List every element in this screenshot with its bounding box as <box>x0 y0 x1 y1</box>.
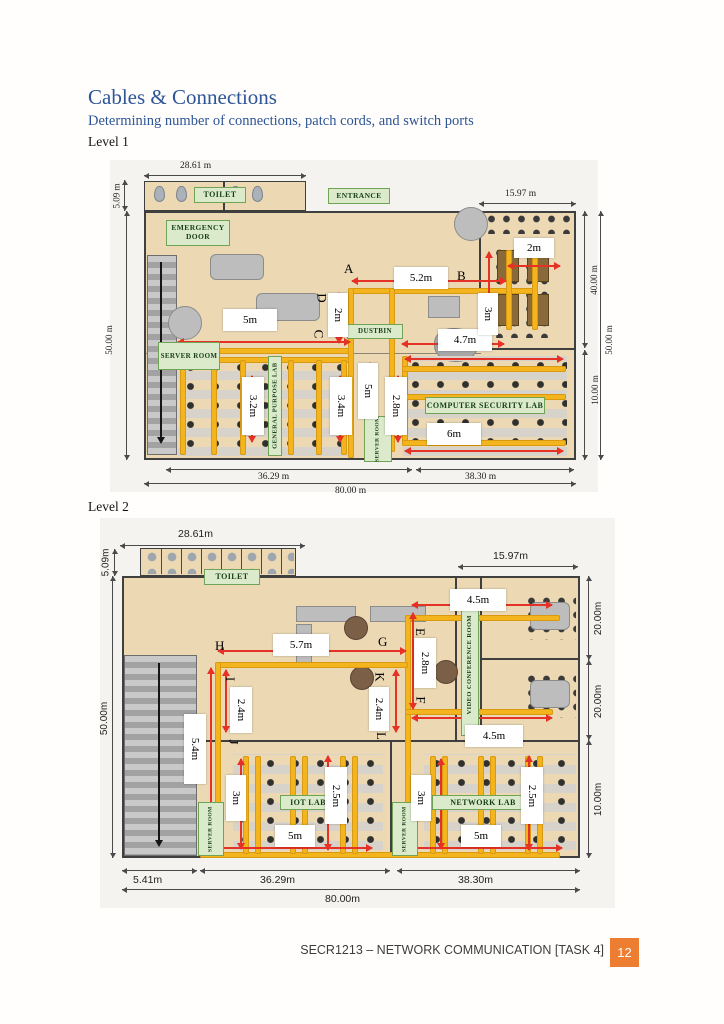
measure-label: 3.2m <box>242 377 264 435</box>
measure-label: 5m <box>358 363 378 419</box>
level2-label: Level 2 <box>88 499 129 515</box>
measure-arrow <box>212 847 372 849</box>
room-label-server-room: SERVER ROOM <box>158 342 220 370</box>
measure-label: 5.4m <box>184 714 206 784</box>
point-b: B <box>457 268 466 284</box>
dimension-text: 5.09 m <box>110 178 122 214</box>
measure-label: 3.4m <box>330 377 352 435</box>
room-label-emergency-door: EMERGENCY DOOR <box>166 220 230 246</box>
point-f: F <box>413 696 429 703</box>
room-label-general-purpose-lab: GENERAL PURPOSE LAB <box>268 356 282 456</box>
point-c: C <box>310 330 326 339</box>
point-h: H <box>215 638 224 654</box>
dimension-line <box>588 740 589 858</box>
measure-label: 2m <box>328 293 348 337</box>
dimension-text: 50.00m <box>98 688 112 748</box>
measure-label: 2.4m <box>230 687 252 733</box>
dimension-text: 5.09m <box>100 546 112 578</box>
dimension-line <box>600 211 601 460</box>
dimension-text: 28.61m <box>178 528 213 540</box>
dimension-text: 50.00 m <box>102 305 116 375</box>
toilet-icon <box>176 186 187 202</box>
round-stool <box>344 616 368 640</box>
meeting-table <box>210 254 264 280</box>
dimension-line <box>588 576 589 660</box>
measure-label: 3m <box>411 775 431 821</box>
cable-run <box>255 756 261 854</box>
cable-run <box>405 709 553 715</box>
measure-label: 5m <box>223 309 277 331</box>
dimension-line <box>200 870 390 871</box>
dimension-text: 10.00 m <box>588 360 602 420</box>
dimension-text: 20.00m <box>592 593 606 643</box>
measure-label: 2m <box>514 238 554 258</box>
dimension-text: 20.00m <box>592 676 606 726</box>
point-j: J <box>226 739 242 744</box>
cable-run <box>352 756 358 854</box>
dimension-line <box>397 870 580 871</box>
measure-label: 2.8m <box>414 638 436 688</box>
dimension-line <box>124 180 125 211</box>
room-label-toilet: TOILET <box>194 187 246 203</box>
cable-run <box>532 250 538 330</box>
page-title: Cables & Connections <box>88 85 277 110</box>
round-stool <box>434 660 458 684</box>
measure-arrow <box>395 670 397 732</box>
desk-row <box>484 212 570 234</box>
dimension-text: 80.00m <box>325 893 360 905</box>
dimension-line <box>458 566 578 567</box>
point-l: L <box>373 732 389 740</box>
inner-wall <box>480 658 580 660</box>
meeting-table <box>530 680 570 708</box>
dimension-text: 38.30 m <box>465 472 496 482</box>
dimension-line <box>584 350 585 460</box>
measure-label: 4.5m <box>450 589 506 611</box>
measure-label: 2.5m <box>325 767 347 824</box>
measure-arrow <box>410 847 562 849</box>
dimension-text: 36.29m <box>260 874 295 886</box>
cable-run <box>180 360 186 455</box>
measure-label: 2.5m <box>521 767 543 824</box>
cable-run <box>408 615 560 621</box>
measure-label: 5m <box>461 825 501 847</box>
wood-table <box>527 294 549 326</box>
measure-label: 5m <box>275 825 315 847</box>
general-purpose-lab-desks <box>178 358 354 456</box>
dimension-line <box>588 660 589 740</box>
room-label-entrance: ENTRANCE <box>328 188 390 204</box>
dimension-line <box>166 469 412 470</box>
stairs-arrow <box>158 663 160 845</box>
dimension-text: 10.00m <box>592 774 606 824</box>
cable-run <box>215 662 408 668</box>
round-table <box>168 306 202 340</box>
room-label-video-conference: VIDEO CONFERENCE ROOM <box>461 594 479 736</box>
level2-floorplan: TOILET VIDEO CONFERENCE ROOM IOT LAB NET… <box>100 518 615 908</box>
dimension-text: 15.97 m <box>505 189 536 199</box>
dimension-line <box>144 175 306 176</box>
room-label-computer-security-lab: COMPUTER SECURITY LAB <box>425 397 545 414</box>
measure-label: 5.7m <box>273 634 329 656</box>
page-number-badge: 12 <box>610 938 639 967</box>
round-table <box>454 207 488 241</box>
dimension-line <box>584 211 585 348</box>
dimension-text: 38.30m <box>458 874 493 886</box>
level1-label: Level 1 <box>88 134 129 150</box>
room-label-toilet: TOILET <box>204 569 260 585</box>
room-label-dustbin: DUSTBIN <box>347 324 403 339</box>
dimension-text: 36.29 m <box>258 472 289 482</box>
cable-run <box>211 360 217 455</box>
measure-label: 5.2m <box>394 267 448 289</box>
dimension-line <box>479 203 576 204</box>
measure-label: 2.4m <box>369 687 389 731</box>
dimension-text: 15.97m <box>493 550 528 562</box>
measure-arrow <box>405 450 563 452</box>
measure-arrow <box>405 358 563 360</box>
point-a: A <box>344 261 353 277</box>
document-page: Cables & Connections Determining number … <box>0 0 724 1024</box>
dimension-line <box>120 545 305 546</box>
inner-wall <box>479 348 576 350</box>
dimension-text: 5.41m <box>133 874 162 886</box>
dimension-text: 28.61 m <box>180 161 211 171</box>
measure-label: 4.5m <box>465 725 523 747</box>
point-i: I <box>222 677 238 681</box>
dimension-line <box>126 211 127 460</box>
cable-run <box>402 366 566 372</box>
measure-arrow <box>508 265 560 267</box>
dimension-line <box>112 576 113 858</box>
measure-label: 3m <box>478 293 498 335</box>
dimension-text: 80.00 m <box>335 486 366 496</box>
room-label-server-room-left: SERVER ROOM <box>198 802 224 856</box>
measure-label: 6m <box>427 423 481 445</box>
toilet-icon <box>154 186 165 202</box>
measure-arrow <box>412 717 552 719</box>
point-g: G <box>378 634 387 650</box>
cable-run <box>288 360 294 455</box>
point-e: E <box>412 628 428 636</box>
toilet-icon <box>252 186 263 202</box>
measure-label: 3m <box>226 775 246 821</box>
dimension-text: 40.00 m <box>587 245 601 315</box>
point-d: D <box>314 293 330 302</box>
measure-label: 2.8m <box>385 377 407 435</box>
room-label-network-lab: NETWORK LAB <box>432 795 534 810</box>
point-k: K <box>372 672 388 681</box>
cable-run <box>200 348 354 354</box>
dimension-line <box>144 483 576 484</box>
page-subtitle: Determining number of connections, patch… <box>88 113 474 130</box>
footer-text: SECR1213 – NETWORK COMMUNICATION [TASK 4… <box>300 943 604 957</box>
cable-run <box>200 852 560 858</box>
dimension-line <box>122 889 580 890</box>
dimension-line <box>122 870 197 871</box>
dimension-line <box>114 549 115 576</box>
desk <box>428 296 460 318</box>
dimension-line <box>416 469 574 470</box>
dimension-text: 50.00 m <box>602 305 616 375</box>
cable-run <box>316 360 322 455</box>
level1-floorplan: TOILET ENTRANCE EMERGENCY DOOR SERVER RO… <box>110 160 598 492</box>
